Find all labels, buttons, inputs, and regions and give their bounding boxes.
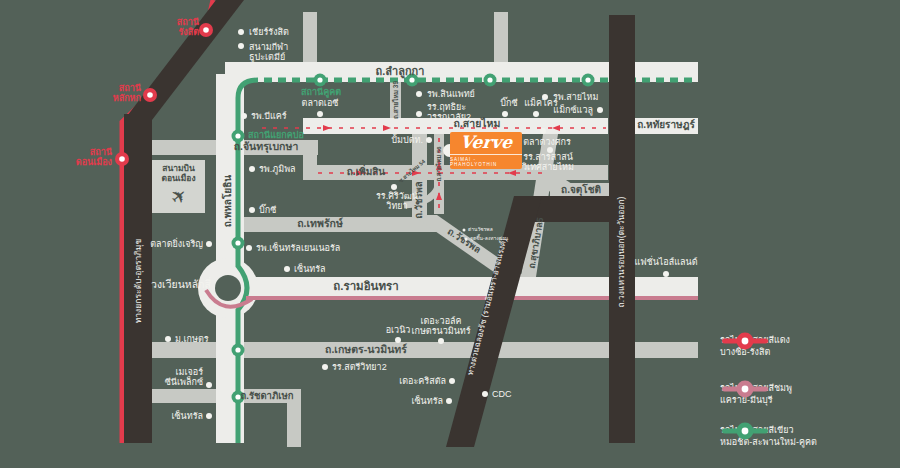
road-stub-north-1 [303, 12, 317, 64]
poi-dot-central-south [446, 398, 452, 404]
poi-dot-the-crystal [449, 378, 455, 384]
poi-dot-bhumibol-hospital [249, 166, 255, 172]
poi-dot-fashion-island [663, 271, 669, 277]
poi-dot-central-general-hospital [246, 245, 252, 251]
road-chatuchot [550, 183, 609, 198]
poi-dot-yingcharoen-market [206, 241, 212, 247]
pink-line-legend-icon [720, 380, 770, 398]
legend-item-pink-line: รถไฟฟ้าสายสีชมพู แคราย-มีนบุรี [720, 380, 792, 410]
verve-logo: Verve [459, 134, 513, 151]
poi-dot-bigc-phahon [249, 207, 255, 213]
red-line-legend-icon [720, 332, 770, 350]
poi-dot-talad-ac [317, 111, 323, 117]
poi-dot-sarasas-witaed-saimai [547, 147, 553, 153]
poi-dot-makro [533, 111, 539, 117]
tollway-vertical [124, 114, 152, 443]
poi-dot-ritthiyawannalai2 [416, 111, 422, 117]
road-ratchadaphisek-v [287, 389, 301, 447]
poi-dot-watcharaphon-toll [463, 229, 466, 232]
road-watcharaphon-vertical [412, 134, 427, 228]
verve-logo-subtitle: SAIMAI - PHAHOLYOTHIN [450, 154, 522, 167]
road-west-stub-2 [152, 389, 216, 403]
poi-dot-bigc-saimai [502, 111, 508, 117]
poi-dot-zeer-rangsit [238, 29, 244, 35]
poi-dot-ptt-station [426, 137, 432, 143]
road-west-stub-1 [152, 342, 216, 358]
road-hathairat [634, 118, 698, 134]
legend-item-green-line: รถไฟฟ้าสายสีเขียว หมอชิต-สะพานใหม่-คูคต [720, 422, 817, 452]
poi-dot-satriwittaya2 [322, 364, 328, 370]
airplane-icon: ✈ [165, 182, 192, 210]
road-saimai39 [390, 82, 401, 120]
poi-dot-the-walk [438, 338, 444, 344]
poi-dot-major-cineplex [206, 382, 212, 388]
poi-dot-synphaet-hospital [416, 91, 422, 97]
poi-dot-siriwat-wittaya [391, 184, 397, 190]
poi-dot-avenue [395, 337, 401, 343]
legend-item-red-line: รถไฟฟ้าสายสีแดง บางซื่อ-รังสิต [720, 332, 790, 362]
verve-project-box: Verve SAIMAI - PHAHOLYOTHIN [450, 132, 522, 169]
poi-dot-saimai-hospital [542, 94, 548, 100]
don-mueang-airport-box: สนามบิน ดอนเมือง ✈ [152, 160, 205, 213]
airport-label: สนามบิน ดอนเมือง [161, 164, 195, 184]
poi-dot-expressway-ramp [465, 238, 468, 241]
location-map: ถ.ลำลูกกาถ.หทัยราษฎร์ถ.สายไหมถ.เพิ่มสินถ… [0, 0, 900, 468]
laksi-roundabout-center [215, 275, 241, 301]
road-thepharak [244, 217, 440, 232]
poi-dot-thupatemi-stadium [238, 43, 244, 49]
road-stub-north-2 [494, 12, 508, 64]
poi-dot-cdc [482, 391, 488, 397]
poi-dot-maxvalu [597, 107, 603, 113]
poi-dot-central-west [206, 413, 212, 419]
poi-dot-bcare-hospital [241, 113, 247, 119]
outer-ring-road [609, 15, 635, 443]
poi-dot-kasetsart-university [165, 336, 171, 342]
poi-dot-wongsakorn-market [540, 128, 546, 134]
poi-dot-central-ramindra [284, 266, 290, 272]
green-line-legend-icon [720, 422, 770, 440]
